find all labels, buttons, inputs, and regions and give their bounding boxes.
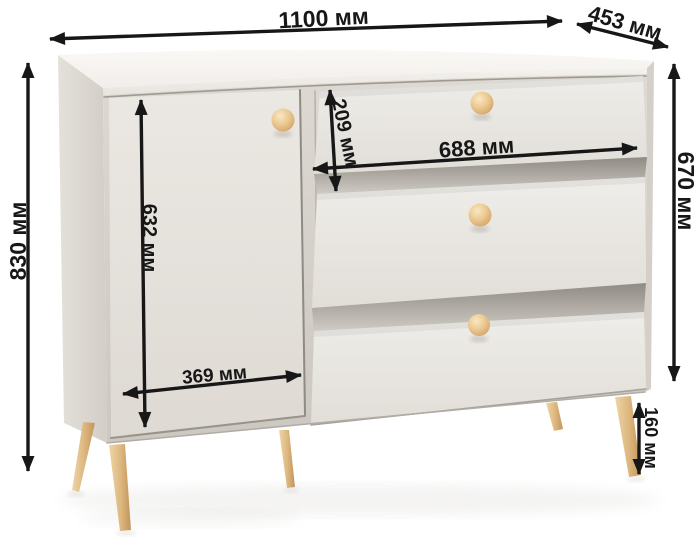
- leg-shadow: [67, 491, 85, 497]
- door-knob-shadow: [274, 131, 292, 138]
- drawer-2-knob: [469, 204, 492, 227]
- dim-drawer-width-label: 688 мм: [438, 132, 515, 162]
- dim-body-height-label: 670 мм: [673, 152, 699, 231]
- product-diagram-canvas: 1100 мм 453 мм 830 мм 670 мм 632 мм 369 …: [0, 0, 700, 540]
- knob-1-shadow: [473, 114, 491, 121]
- leg-shadow: [283, 487, 299, 493]
- leg-shadow: [116, 530, 136, 536]
- dim-leg-height-label: 160 мм: [641, 407, 661, 469]
- dim-height-label: 830 мм: [5, 202, 31, 281]
- drawer-3-knob: [468, 314, 490, 336]
- cabinet-left-side: [58, 55, 107, 443]
- floor-shadow-left: [80, 509, 300, 527]
- dim-door-height-label: 632 мм: [138, 204, 160, 273]
- knob-3-shadow: [470, 336, 488, 343]
- furniture-dimension-diagram: 1100 мм 453 мм 830 мм 670 мм 632 мм 369 …: [0, 0, 700, 540]
- door-knob: [272, 109, 295, 132]
- knob-2-shadow: [471, 226, 489, 233]
- drawer-1-knob: [471, 92, 494, 115]
- dim-width-label: 1100 мм: [278, 3, 370, 34]
